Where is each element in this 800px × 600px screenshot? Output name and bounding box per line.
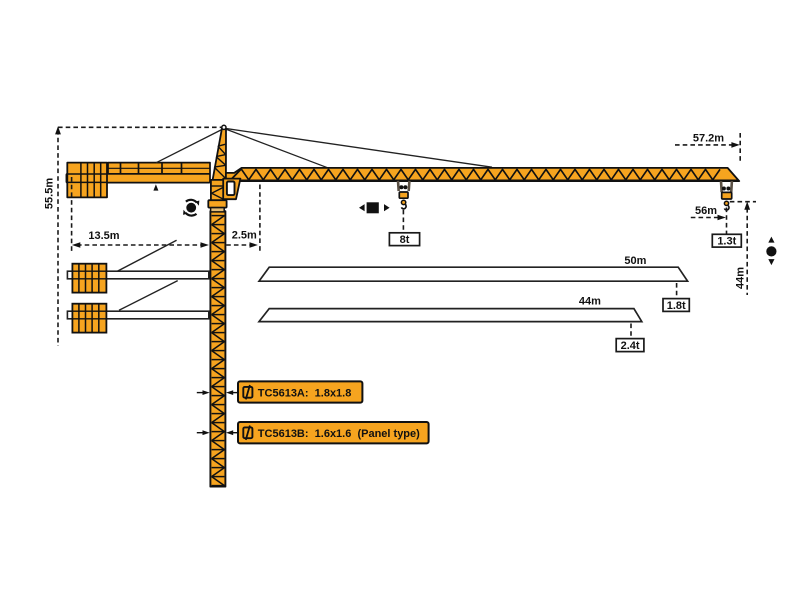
svg-text:13.5m: 13.5m [88, 230, 119, 242]
svg-text:44m: 44m [735, 267, 747, 289]
svg-text:55.5m: 55.5m [43, 178, 55, 209]
svg-text:1.8t: 1.8t [667, 300, 686, 312]
svg-text:TC5613A: 1.8x1.8: TC5613A: 1.8x1.8 [258, 388, 352, 400]
svg-text:8t: 8t [400, 234, 410, 246]
svg-text:57.2m: 57.2m [693, 133, 724, 145]
svg-text:1.3t: 1.3t [717, 236, 736, 248]
svg-text:2.5m: 2.5m [232, 230, 257, 242]
svg-text:TC5613B: 1.6x1.6 (Panel type: TC5613B: 1.6x1.6 (Panel type) [258, 428, 420, 440]
svg-text:2.4t: 2.4t [621, 340, 640, 352]
svg-text:56m: 56m [695, 205, 717, 217]
svg-text:44m: 44m [579, 296, 601, 308]
svg-text:50m: 50m [624, 255, 646, 267]
